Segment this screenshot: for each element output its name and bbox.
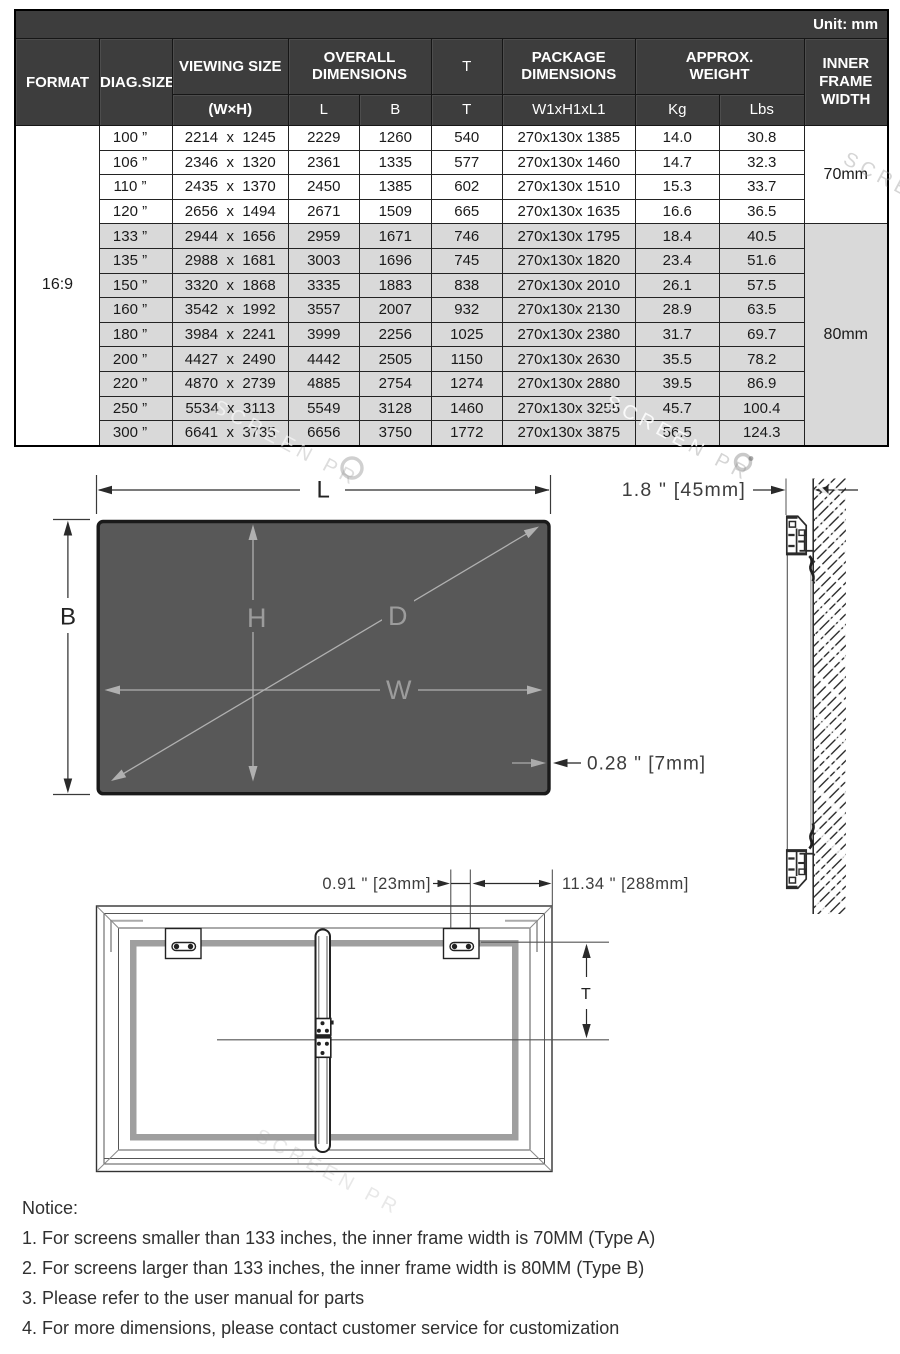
svg-text:11.34 " [288mm]: 11.34 " [288mm] [562,875,689,893]
svg-text:D: D [388,601,408,631]
svg-text:0.28 " [7mm]: 0.28 " [7mm] [587,754,706,775]
svg-text:1.8 " [45mm]: 1.8 " [45mm] [622,479,746,501]
svg-text:W: W [386,675,412,705]
svg-text:0.91 " [23mm]: 0.91 " [23mm] [322,875,431,893]
svg-text:L: L [317,477,330,504]
svg-text:H: H [247,603,267,633]
svg-text:B: B [60,604,76,631]
svg-text:T: T [581,986,591,1003]
